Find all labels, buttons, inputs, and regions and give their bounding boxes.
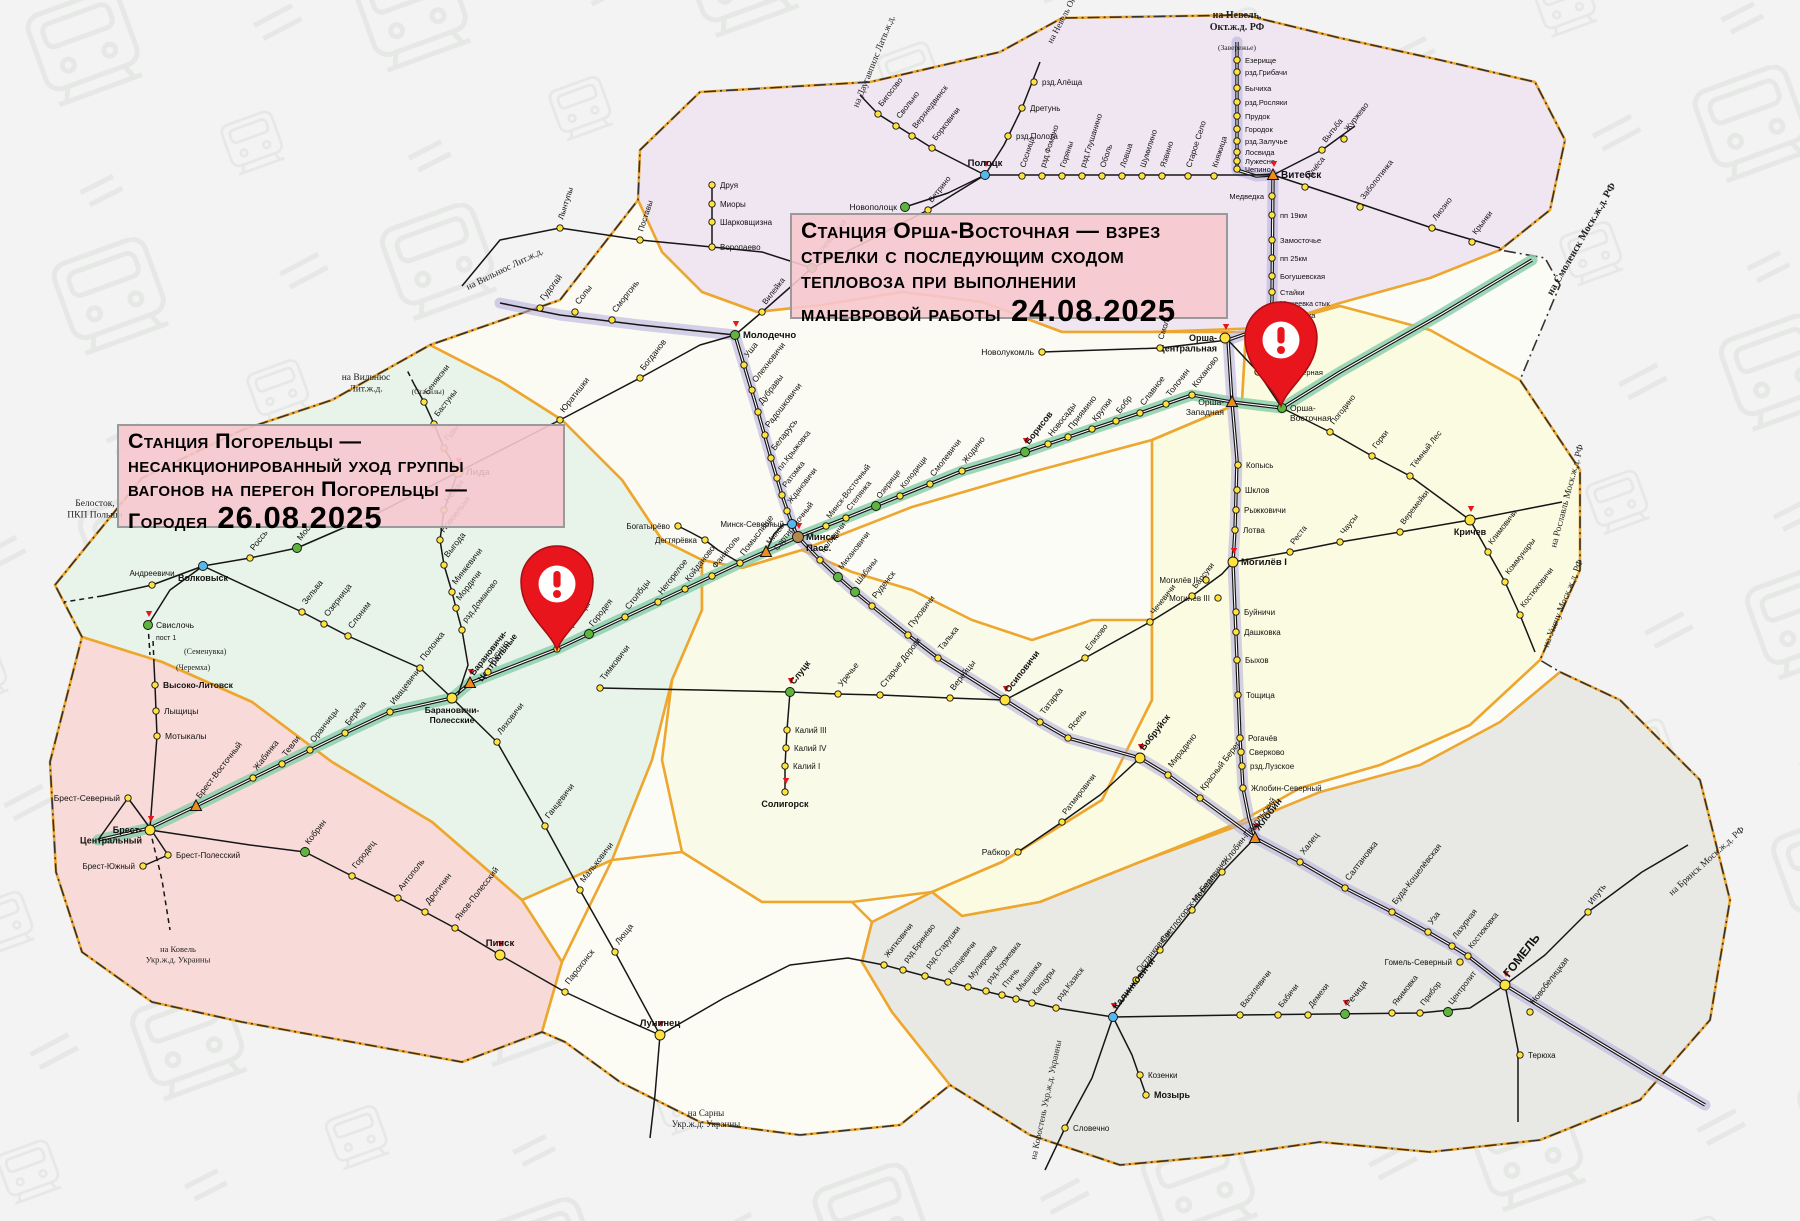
incident-date: 24.08.2025 (1011, 294, 1176, 329)
station-dot (145, 825, 155, 835)
station-dot (782, 789, 788, 795)
station-dot (999, 992, 1005, 998)
station-dot (562, 989, 568, 995)
station-dot (1234, 57, 1240, 63)
station-label: Волковыск (178, 573, 229, 583)
station-dot (877, 692, 883, 698)
station-dot (1031, 79, 1037, 85)
station-dot (247, 555, 253, 561)
station-dot (755, 409, 761, 415)
callout-line: маневровой работы 24.08.2025 (801, 294, 1217, 329)
station-dot (784, 727, 790, 733)
station-dot (577, 887, 583, 893)
station-dot (675, 523, 681, 529)
station-dot (834, 573, 843, 582)
station-dot (542, 823, 548, 829)
station-dot (250, 775, 256, 781)
station-label: Дегтярёвка (655, 536, 698, 545)
station-dot (609, 317, 615, 323)
callout-line: несанкционированный уход группы (128, 453, 554, 477)
station-dot (1119, 173, 1125, 179)
station-dot (1165, 772, 1171, 778)
station-dot (1139, 173, 1145, 179)
station-label: Рыжковичи (1244, 506, 1286, 515)
station-label: пост 1 (156, 635, 176, 642)
station-label: Чепино (1245, 165, 1271, 174)
station-dot (709, 219, 715, 225)
station-dot (495, 950, 505, 960)
station-dot (1297, 859, 1303, 865)
station-label: Миоры (720, 200, 746, 209)
station-label: Пинск (486, 938, 515, 949)
station-dot (1197, 795, 1203, 801)
station-dot (1000, 695, 1010, 705)
station-dot (585, 630, 594, 639)
station-dot (749, 387, 755, 393)
station-label: Гомель-Северный (1385, 958, 1452, 967)
station-dot (1237, 1012, 1243, 1018)
station-dot (823, 523, 829, 529)
station-dot (737, 560, 743, 566)
station-dot (1237, 735, 1243, 741)
exclamation-dot (1277, 346, 1285, 354)
station-dot (622, 614, 628, 620)
station-label: Друя (720, 181, 738, 190)
station-dot (1585, 909, 1591, 915)
external-connection-label: (Семенувка) (184, 647, 227, 656)
station-label: Калий IV (794, 744, 827, 753)
station-dot (1444, 1008, 1453, 1017)
station-dot (1469, 239, 1475, 245)
station-dot (1065, 434, 1071, 440)
station-label: Шклов (1245, 486, 1269, 495)
station-dot (293, 544, 302, 553)
station-dot (897, 493, 903, 499)
station-dot (1029, 1000, 1035, 1006)
railway-network-map: Брест-СеверныйБрест-ЦентральныйБрест-Вос… (0, 0, 1800, 1221)
station-dot (153, 708, 159, 714)
station-dot (637, 375, 643, 381)
station-label: Брест-Полесский (176, 851, 240, 860)
station-dot (901, 203, 910, 212)
station-label: Минск-Северный (720, 520, 784, 529)
incident-callout-pogoreltsy: Станция Погорельцы — несанкционированный… (117, 424, 565, 528)
station-dot (1417, 1010, 1423, 1016)
station-dot (1015, 849, 1021, 855)
station-label: Медведка (1229, 192, 1264, 201)
station-dot (1234, 149, 1240, 155)
external-connection-label: (Завережье) (1218, 43, 1256, 52)
station-dot (1389, 909, 1395, 915)
station-dot (1228, 557, 1238, 567)
station-label: Могилёв I (1241, 557, 1287, 568)
station-dot (900, 967, 906, 973)
station-dot (872, 502, 881, 511)
station-dot (1527, 1009, 1533, 1015)
station-dot (1157, 345, 1163, 351)
station-dot (959, 468, 965, 474)
station-label: Андреевичи (129, 569, 174, 578)
station-dot (779, 492, 785, 498)
station-label: Брест-Северный (54, 793, 121, 803)
station-dot (1021, 448, 1030, 457)
station-dot (1013, 996, 1019, 1002)
station-dot (1341, 1010, 1350, 1019)
station-dot (1342, 885, 1348, 891)
station-dot (447, 693, 457, 703)
station-dot (1517, 1052, 1523, 1058)
station-label: Воропаево (720, 243, 761, 252)
station-dot (1485, 549, 1491, 555)
station-dot (1189, 392, 1195, 398)
railway-map-stage: Брест-СеверныйБрест-ЦентральныйБрест-Вос… (0, 0, 1800, 1221)
callout-line: тепловоза при выполнении (801, 268, 1217, 293)
station-dot (144, 621, 153, 630)
station-dot (149, 582, 155, 588)
station-label: Брест-Южный (82, 862, 135, 871)
incident-date: 26.08.2025 (217, 501, 382, 536)
station-label: Молодечно (743, 330, 796, 341)
station-dot (1137, 1072, 1143, 1078)
station-label: Богатырёво (626, 522, 670, 531)
station-dot (612, 949, 618, 955)
station-dot (759, 309, 765, 315)
station-dot (1234, 138, 1240, 144)
station-dot (321, 621, 327, 627)
station-label: Козенки (1148, 1071, 1177, 1080)
station-label: Замосточье (1280, 236, 1321, 245)
station-dot (1269, 255, 1275, 261)
station-label: Словечно (1073, 1124, 1110, 1133)
station-dot (1341, 136, 1347, 142)
station-dot (1275, 1012, 1281, 1018)
station-label: Дретунь (1030, 104, 1060, 113)
station-dot (1457, 959, 1463, 965)
station-dot (417, 665, 423, 671)
station-dot (1389, 1010, 1395, 1016)
station-dot (1053, 1005, 1059, 1011)
station-dot (1269, 289, 1275, 295)
station-dot (1235, 692, 1241, 698)
station-label: Кричев (1454, 527, 1487, 537)
station-dot (1059, 173, 1065, 179)
station-label: Дашковка (1244, 628, 1281, 637)
station-dot (1233, 609, 1239, 615)
station-dot (557, 417, 563, 423)
station-dot (1045, 441, 1051, 447)
station-dot (453, 605, 459, 611)
exclamation-icon (1277, 327, 1284, 344)
station-dot (947, 695, 953, 701)
station-dot (783, 745, 789, 751)
station-dot (981, 171, 990, 180)
callout-line: Станция Орша-Восточная — взрез (801, 218, 1217, 243)
station-label: Новополоцк (849, 202, 897, 212)
station-dot (1233, 629, 1239, 635)
station-dot (782, 763, 788, 769)
external-connection-label: на Невель,Окт.ж.д. РФ (1210, 10, 1265, 33)
station-dot (199, 562, 208, 571)
station-dot (597, 685, 603, 691)
station-dot (1234, 99, 1240, 105)
station-label: Тощица (1246, 691, 1275, 700)
station-dot (345, 633, 351, 639)
external-connection-label: Белосток,ПКП Польши (67, 499, 122, 521)
station-dot (1082, 655, 1088, 661)
station-dot (441, 562, 447, 568)
station-dot (307, 747, 313, 753)
station-dot (572, 309, 578, 315)
station-label: Мотыкалы (165, 731, 206, 741)
station-label: Лосвида (1245, 148, 1275, 157)
station-dot (935, 655, 941, 661)
station-dot (784, 508, 790, 514)
station-dot (768, 455, 774, 461)
incident-callout-orsha: Станция Орша-Восточная — взрез стрелки с… (790, 213, 1228, 319)
station-dot (1163, 401, 1169, 407)
station-dot (1327, 429, 1333, 435)
station-dot (279, 761, 285, 767)
station-label: Городок (1245, 125, 1273, 134)
station-label: Буйничи (1244, 608, 1275, 617)
station-dot (437, 537, 443, 543)
station-dot (1337, 539, 1343, 545)
station-label: Новолукомль (981, 347, 1034, 357)
station-dot (851, 588, 860, 597)
station-dot (1465, 953, 1471, 959)
station-dot (1407, 473, 1413, 479)
exclamation-icon (553, 571, 560, 588)
station-dot (1232, 527, 1238, 533)
external-connection-label: (Черемха) (176, 663, 210, 672)
station-dot (342, 730, 348, 736)
station-dot (387, 709, 393, 715)
station-dot (1319, 147, 1325, 153)
station-label: рзд.Росляки (1245, 98, 1287, 107)
station-dot (1211, 173, 1217, 179)
station-dot (1397, 529, 1403, 535)
station-dot (1019, 173, 1025, 179)
station-label: Свислочь (156, 620, 195, 630)
station-dot (1269, 212, 1275, 218)
station-dot (1425, 929, 1431, 935)
station-dot (1234, 69, 1240, 75)
rail-line (153, 640, 154, 664)
station-dot (1500, 980, 1510, 990)
station-dot (1039, 349, 1045, 355)
station-label: пп 19км (1280, 211, 1307, 220)
station-dot (154, 733, 160, 739)
station-dot (1143, 1092, 1149, 1098)
station-dot (537, 305, 543, 311)
station-label: Быхов (1245, 656, 1269, 665)
station-label: пп 25км (1280, 254, 1307, 263)
station-dot (140, 863, 146, 869)
station-dot (1502, 579, 1508, 585)
station-label: Сверково (1249, 748, 1285, 757)
station-dot (788, 520, 797, 529)
station-dot (1065, 735, 1071, 741)
station-dot (1037, 719, 1043, 725)
station-label: Жлобин-Северный (1251, 784, 1322, 793)
station-dot (1233, 507, 1239, 513)
station-dot (459, 627, 465, 633)
station-dot (1099, 173, 1105, 179)
station-dot (421, 399, 427, 405)
station-label: Богушевская (1280, 272, 1325, 281)
station-dot (793, 532, 804, 543)
station-dot (655, 599, 661, 605)
station-dot (835, 691, 841, 697)
station-dot (922, 973, 928, 979)
station-dot (1269, 273, 1275, 279)
station-dot (1234, 126, 1240, 132)
station-label: рзд.Залучье (1245, 137, 1288, 146)
station-label: рзд.Лузское (1250, 762, 1295, 771)
callout-line: вагонов на перегон Погорельцы — (128, 477, 554, 501)
station-dot (301, 848, 310, 857)
station-dot (1062, 1125, 1068, 1131)
station-dot (637, 237, 643, 243)
station-dot (1517, 612, 1523, 618)
callout-line: стрелки с последующим сходом (801, 243, 1217, 268)
station-dot (1369, 453, 1375, 459)
station-dot (655, 1030, 665, 1040)
station-label: рзд.Грибачи (1245, 68, 1287, 77)
station-dot (125, 795, 131, 801)
station-label: Лотва (1243, 526, 1265, 535)
station-dot (893, 123, 899, 129)
station-label: Прудок (1245, 112, 1271, 121)
station-dot (152, 682, 158, 688)
station-dot (1269, 237, 1275, 243)
station-dot (1079, 173, 1085, 179)
exclamation-dot (553, 590, 561, 598)
station-dot (1019, 105, 1025, 111)
station-dot (709, 182, 715, 188)
station-label: рзд.Алёща (1042, 78, 1083, 87)
station-dot (1137, 410, 1143, 416)
station-dot (741, 362, 747, 368)
station-dot (1305, 1012, 1311, 1018)
station-label: Калий III (795, 726, 827, 735)
station-label: Барановичи-Полесские (425, 705, 480, 725)
station-dot (1235, 462, 1241, 468)
station-dot (1357, 204, 1363, 210)
station-dot (731, 331, 740, 340)
station-dot (709, 573, 715, 579)
station-dot (1220, 333, 1230, 343)
station-dot (881, 962, 887, 968)
station-label: Терюха (1528, 1051, 1556, 1060)
station-label: Мозырь (1154, 1090, 1191, 1100)
station-dot (485, 669, 491, 675)
station-label: Шарковщизна (720, 218, 773, 227)
station-dot (1059, 819, 1065, 825)
station-dot (1234, 166, 1240, 172)
station-label: Солигорск (761, 799, 809, 809)
station-dot (1135, 753, 1145, 763)
station-dot (1089, 426, 1095, 432)
external-connection-label: (Стасилы) (412, 387, 445, 396)
station-dot (1185, 173, 1191, 179)
station-dot (452, 925, 458, 931)
station-label: Рабкор (982, 847, 1011, 857)
station-dot (422, 909, 428, 915)
station-dot (1302, 184, 1308, 190)
station-dot (1240, 785, 1246, 791)
station-dot (1429, 225, 1435, 231)
station-dot (1465, 515, 1475, 525)
station-dot (349, 873, 355, 879)
station-dot (1287, 549, 1293, 555)
station-dot (1239, 763, 1245, 769)
callout-line: Городея 26.08.2025 (128, 501, 554, 536)
station-dot (494, 739, 500, 745)
station-dot (1234, 487, 1240, 493)
station-dot (843, 515, 849, 521)
station-label: Езерище (1245, 56, 1276, 65)
station-dot (709, 201, 715, 207)
station-dot (702, 537, 708, 543)
station-dot (927, 481, 933, 487)
station-dot (1109, 1013, 1118, 1022)
station-dot (1234, 158, 1240, 164)
station-label: Бычиха (1245, 84, 1272, 93)
station-dot (1039, 173, 1045, 179)
station-dot (1005, 133, 1011, 139)
station-label: Высоко-Литовск (163, 680, 234, 690)
callout-line: Станция Погорельцы — (128, 429, 554, 453)
station-label: рзд.Полота (1016, 132, 1058, 141)
station-dot (1189, 593, 1195, 599)
station-dot (945, 979, 951, 985)
station-dot (983, 988, 989, 994)
station-dot (1234, 85, 1240, 91)
station-dot (762, 432, 768, 438)
station-dot (909, 133, 915, 139)
station-label: Лунинец (640, 1018, 681, 1029)
station-dot (1234, 113, 1240, 119)
station-dot (786, 688, 795, 697)
station-dot (557, 225, 563, 231)
station-dot (774, 475, 780, 481)
station-dot (1147, 619, 1153, 625)
station-dot (875, 111, 881, 117)
station-dot (817, 557, 823, 563)
station-dot (682, 586, 688, 592)
station-dot (869, 603, 875, 609)
station-dot (709, 244, 715, 250)
station-label: Калий I (793, 762, 820, 771)
station-dot (1449, 943, 1455, 949)
station-dot (165, 852, 171, 858)
station-dot (905, 632, 911, 638)
station-dot (965, 984, 971, 990)
station-dot (1238, 749, 1244, 755)
station-dot (1215, 595, 1221, 601)
station-label: Рогачёв (1248, 734, 1277, 743)
station-dot (1234, 657, 1240, 663)
station-dot (1113, 418, 1119, 424)
station-dot (1269, 193, 1275, 199)
station-label: Лыщицы (164, 706, 198, 716)
station-dot (395, 895, 401, 901)
station-label: Копысь (1246, 461, 1273, 470)
station-label: Стайки (1280, 288, 1305, 297)
station-dot (299, 609, 305, 615)
station-label: Полоцк (968, 158, 1003, 169)
